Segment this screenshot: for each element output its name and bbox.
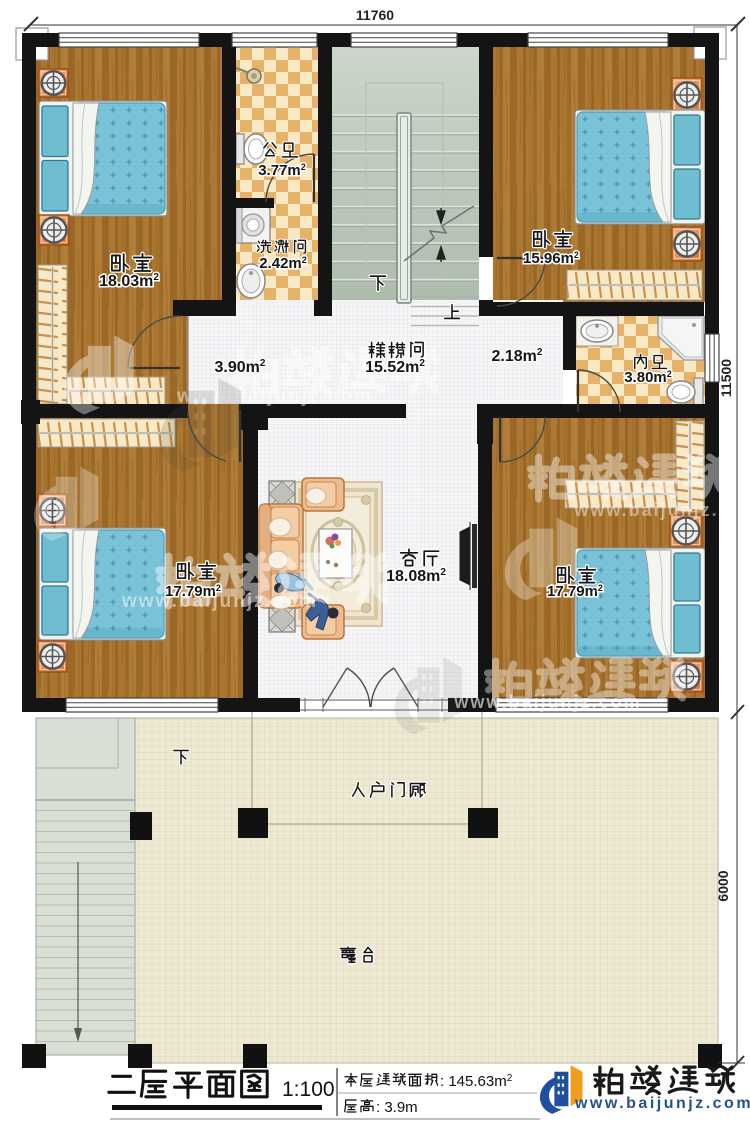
svg-text:www.baijunjz.com: www.baijunjz.com xyxy=(582,3,750,20)
svg-text:2.42m2: 2.42m2 xyxy=(259,255,307,272)
svg-text:www.baijunjz.com: www.baijunjz.com xyxy=(453,692,641,712)
svg-text:15.52m2: 15.52m2 xyxy=(365,358,425,376)
svg-text:17.79m2: 17.79m2 xyxy=(547,583,603,600)
svg-text:: 145.63m2: : 145.63m2 xyxy=(440,1073,513,1090)
svg-text:15.96m2: 15.96m2 xyxy=(523,250,579,267)
svg-text:3.90m2: 3.90m2 xyxy=(215,358,266,376)
svg-text:: 3.9m: : 3.9m xyxy=(376,1099,418,1116)
svg-text:3.77m2: 3.77m2 xyxy=(258,162,306,179)
svg-text:11760: 11760 xyxy=(356,7,394,23)
svg-text:11500: 11500 xyxy=(718,359,734,397)
svg-text:www.baijunjz.com: www.baijunjz.com xyxy=(574,1095,750,1112)
svg-text:18.03m2: 18.03m2 xyxy=(99,272,159,290)
svg-text:www.baijunjz.com: www.baijunjz.com xyxy=(573,500,750,520)
svg-text:3.80m2: 3.80m2 xyxy=(624,369,672,386)
svg-text:17.79m2: 17.79m2 xyxy=(165,583,221,600)
svg-text:1:100: 1:100 xyxy=(282,1078,335,1101)
svg-text:6000: 6000 xyxy=(715,870,731,901)
svg-text:www.baijunjz.com: www.baijunjz.com xyxy=(121,591,318,612)
svg-text:2.18m2: 2.18m2 xyxy=(492,347,543,365)
svg-text:18.08m2: 18.08m2 xyxy=(386,567,446,585)
